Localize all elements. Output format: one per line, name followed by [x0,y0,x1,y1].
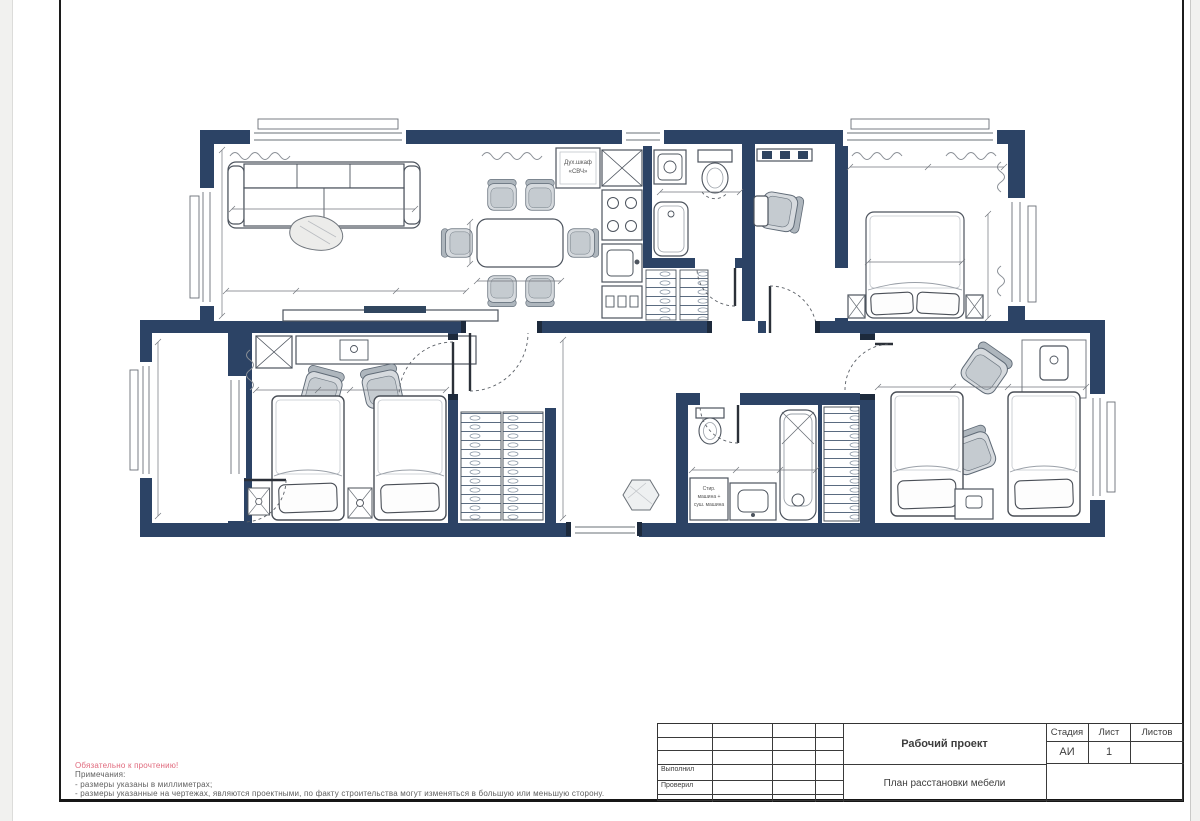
window-balcony-left [130,362,154,478]
wardrobe-shelving [824,407,859,521]
performed-label: Выполнил [661,766,694,773]
kitchen-sink [602,244,642,282]
notes-item-1: - размеры указаны в миллиметрах; [75,780,604,789]
kids-nightstand-left [248,488,270,515]
laundry-label-3: суш. машина [694,502,725,508]
kids-desk [296,336,476,364]
balcony-door-opening [571,521,639,538]
bathtub [780,410,816,520]
master-bed [866,212,964,318]
laundry-stack: Стир. машина + суш. машина [690,478,728,520]
dining-table [477,219,563,267]
window-bath-top [622,128,664,146]
project-type: Рабочий проект [843,724,1046,764]
oven-cabinet-label-1: Дух.шкаф [564,160,592,166]
kids-bed-2 [374,396,446,520]
notes-item-2: - размеры указанные на чертежах, являютс… [75,789,604,798]
stage-label: Стадия [1046,724,1088,741]
bedroom3-table [955,489,993,519]
sheets-value [1130,741,1184,763]
window-living-left [190,188,216,306]
window-master-right [1007,198,1036,306]
tb-line [815,724,816,802]
kids-wardrobe [256,336,292,368]
stage-value: АИ [1046,741,1088,763]
kitchen-drawers [602,286,642,318]
shower-tub-1 [654,202,688,256]
window-living-top [250,119,406,146]
title-block: Выполнил Проверил Рабочий проект План ра… [657,723,1183,801]
tb-line [712,724,713,802]
sheet-label: Лист [1088,724,1130,741]
tb-line [658,737,843,738]
laundry-label-1: Стир. [703,486,716,492]
hallway-console [757,149,812,161]
floor-plan-svg: Дух.шкаф «СВЧ» [0,0,1200,821]
notes-block: Обязательно к прочтению! Примечания: - р… [75,761,604,799]
window-master-top [843,119,997,146]
laundry-label-2: машина + [698,494,721,500]
notes-warning: Обязательно к прочтению! [75,761,604,770]
hob [602,190,642,240]
tb-line [658,794,843,795]
master-nightstand-right [966,295,983,318]
master-nightstand-left [848,295,865,318]
checked-label: Проверил [661,782,693,789]
vanity-sink [730,483,776,520]
sheet-title: План расстановки мебели [843,764,1046,802]
tb-line [772,724,773,802]
bedroom3-bed-1 [891,392,963,516]
window-bedroom3-right [1088,394,1115,500]
oven-cabinet-label-2: «СВЧ» [569,169,588,175]
kids-nightstand-mid [348,488,372,518]
kids-bed-1 [272,396,344,520]
kitchen-tall-cabinet [602,150,642,186]
tb-line [1046,763,1184,764]
tb-line [658,780,843,781]
drawing-sheet: Дух.шкаф «СВЧ» [0,0,1200,821]
sheets-label: Листов [1130,724,1184,741]
bedroom3-bed-2 [1008,392,1080,516]
notes-heading: Примечания: [75,770,604,779]
washing-machine [654,150,686,184]
tb-line [658,750,843,751]
window-balcony-inner [226,376,246,478]
sheet-value: 1 [1088,741,1130,763]
